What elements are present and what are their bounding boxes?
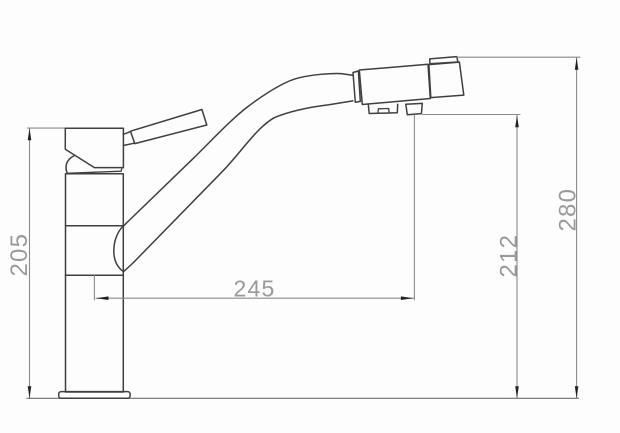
svg-text:245: 245 [234,276,276,302]
svg-text:280: 280 [555,188,582,232]
svg-text:212: 212 [496,234,523,278]
svg-text:205: 205 [6,233,33,277]
